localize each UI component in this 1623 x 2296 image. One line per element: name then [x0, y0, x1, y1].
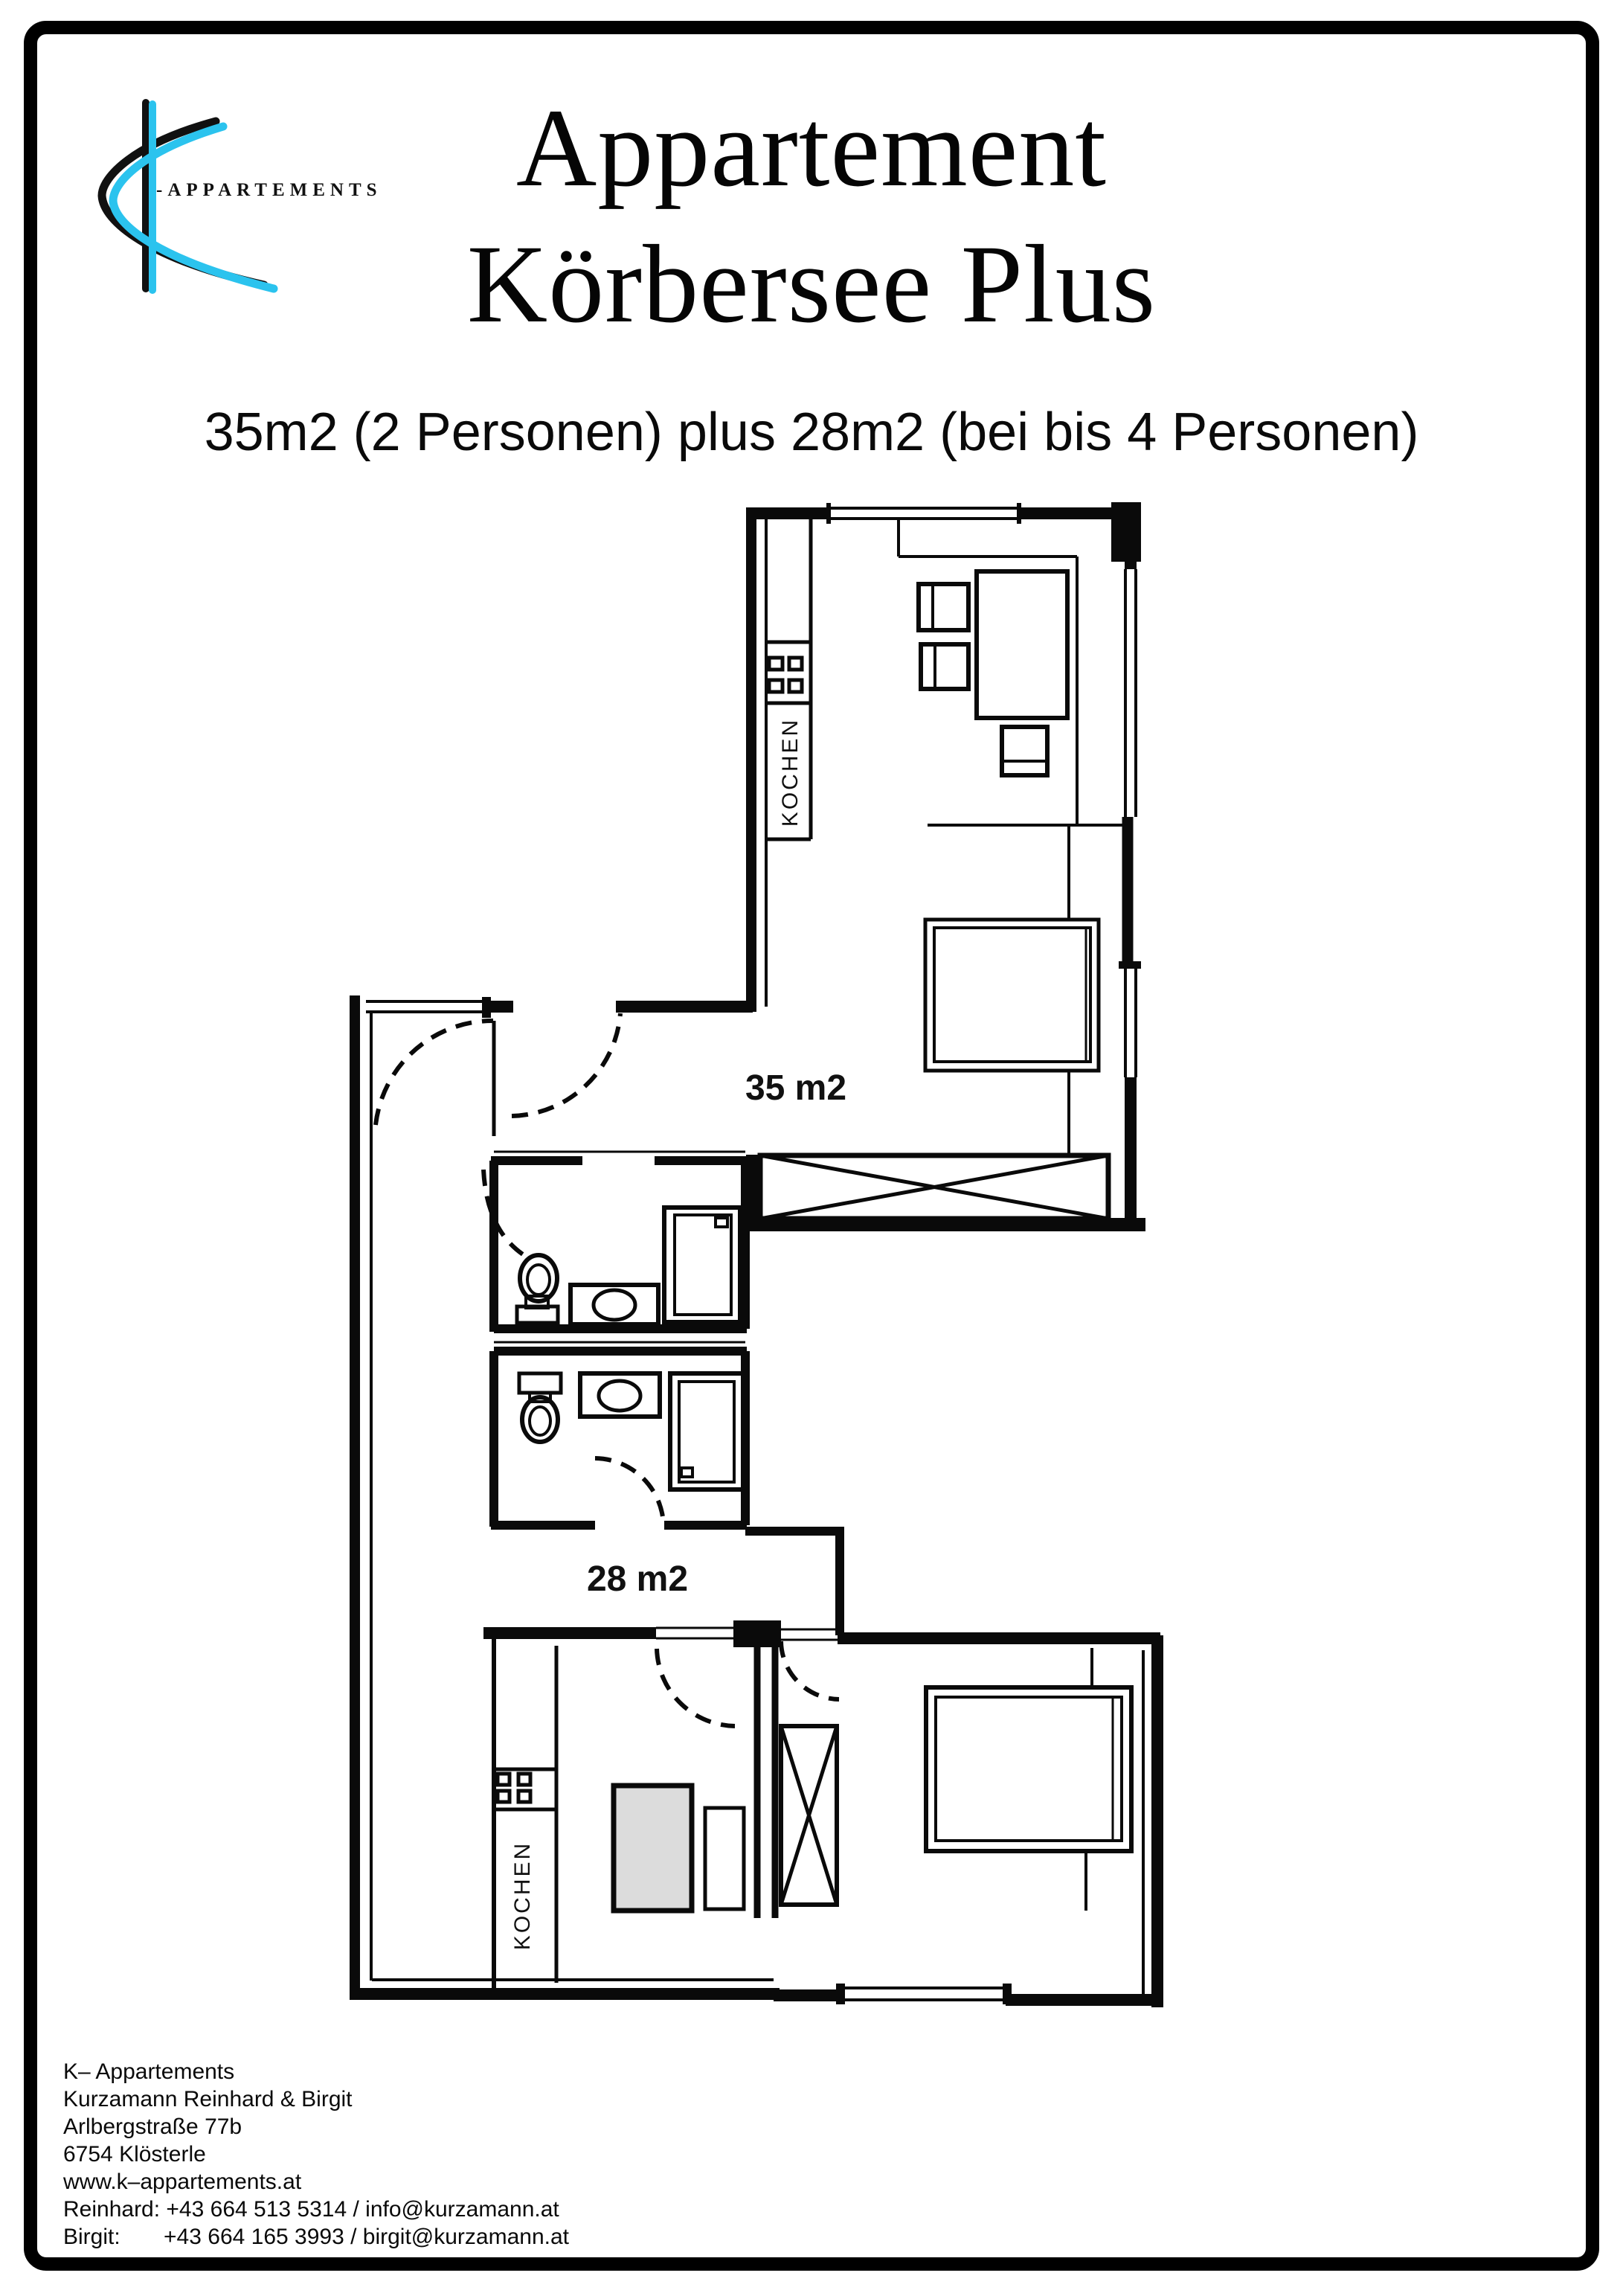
footer-line-street: Arlbergstraße 77b	[63, 2113, 569, 2141]
footer-line-website: www.k–appartements.at	[63, 2168, 569, 2196]
double-bed-upper	[925, 920, 1099, 1071]
toilet-icon	[519, 1373, 561, 1442]
kitchen-door-arc	[657, 1649, 735, 1726]
floor-plan: KOCHEN	[327, 484, 1190, 2024]
bathroom-1	[517, 1208, 740, 1324]
shower-icon	[670, 1373, 743, 1489]
footer-contact: K– Appartements Kurzamann Reinhard & Bir…	[63, 2058, 569, 2251]
bathroom1-door-arc	[483, 1170, 523, 1254]
bathroom2-door-arc	[595, 1458, 663, 1524]
kitchen-label-lower: KOCHEN	[510, 1841, 535, 1950]
page: -Appartements Appartement Körbersee Plus…	[0, 0, 1623, 2296]
wardrobe-lower	[781, 1726, 837, 1905]
footer-line-city: 6754 Klösterle	[63, 2141, 569, 2168]
page-subtitle: 35m2 (2 Personen) plus 28m2 (bei bis 4 P…	[0, 402, 1623, 463]
living-area-lower	[614, 1648, 1131, 1911]
table-lower	[614, 1786, 692, 1911]
hall-door-arc	[512, 1013, 620, 1116]
chair	[919, 584, 968, 630]
bedroom-door-arc	[781, 1641, 839, 1699]
toilet-icon	[517, 1255, 558, 1323]
door-swing-arcs	[376, 1013, 839, 1726]
area-label-lower: 28 m2	[587, 1559, 688, 1599]
footer-line-owners: Kurzamann Reinhard & Birgit	[63, 2085, 569, 2113]
footer-line-phone-birgit: Birgit: +43 664 165 3993 / birgit@kurzam…	[63, 2223, 569, 2251]
bathroom-2	[519, 1373, 743, 1489]
double-bed-lower	[926, 1648, 1131, 1911]
bench	[705, 1808, 744, 1909]
sink-icon	[580, 1373, 660, 1417]
dining-table	[977, 571, 1067, 718]
footer-line-company: K– Appartements	[63, 2058, 569, 2085]
kitchen-label-upper: KOCHEN	[778, 718, 803, 827]
sink-icon	[571, 1285, 658, 1324]
title-line-2: Körbersee Plus	[0, 217, 1623, 353]
page-title: Appartement Körbersee Plus	[0, 80, 1623, 353]
title-line-1: Appartement	[0, 80, 1623, 217]
entry-door-arc	[376, 1021, 493, 1125]
area-label-upper: 35 m2	[745, 1068, 846, 1108]
chair	[921, 644, 968, 689]
stove-burners-icon	[498, 1774, 530, 1802]
stove-burners-icon	[769, 658, 802, 692]
footer-line-phone-reinhard: Reinhard: +43 664 513 5314 / info@kurzam…	[63, 2196, 569, 2223]
wardrobe-upper	[760, 1155, 1108, 1219]
nightstand	[1002, 727, 1047, 775]
living-area-upper	[760, 519, 1125, 1219]
shower-icon	[664, 1208, 740, 1322]
